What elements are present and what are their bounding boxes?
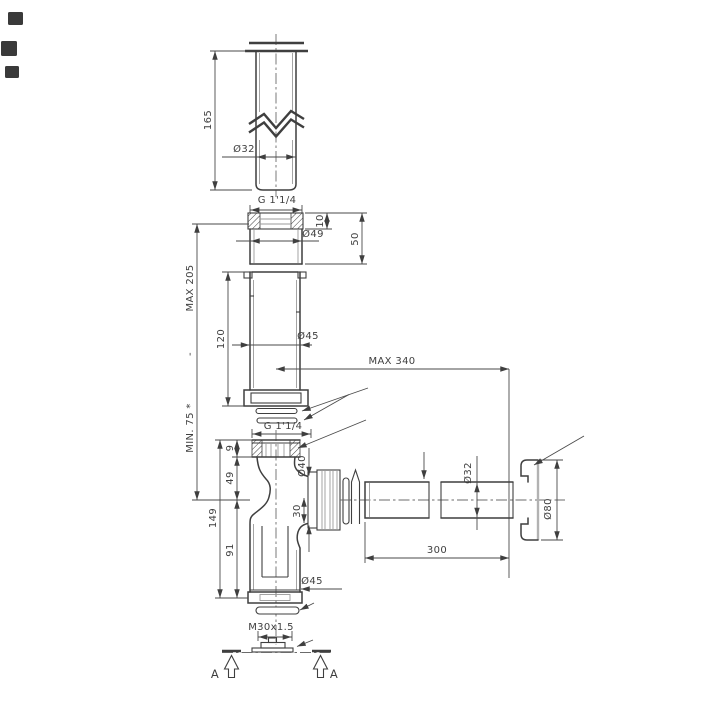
section-arrow-right: A: [314, 656, 339, 682]
dim-height-range: MAX 205 - MIN. 75 *: [185, 224, 250, 500]
dim-tail-length: 165: [203, 51, 252, 190]
dim-wallpipe-length: 300: [365, 522, 509, 563]
dim-10-label: 10: [315, 214, 326, 227]
drain-plug-bottom: [256, 603, 314, 614]
dim-o40-label: Ø40: [296, 455, 308, 477]
section-a-left-label: A: [211, 667, 219, 681]
plug-thread-label: M30x1.5: [248, 622, 294, 633]
dim-min75-label: MIN. 75 *: [185, 403, 196, 452]
dim-o45-bottom-label: Ø45: [301, 575, 323, 587]
dim-thread-top: G 1'1/4: [250, 195, 302, 213]
dim-30-label: 30: [292, 504, 303, 517]
wall-pipe: [340, 482, 565, 518]
dim-range-sep: -: [185, 352, 196, 356]
dim-91-label: 91: [225, 543, 236, 556]
dim-9-label: 9: [225, 445, 236, 452]
dim-reach-max: MAX 340: [276, 356, 509, 578]
tail-pipe: [245, 34, 308, 197]
corner-marks: [1, 12, 23, 78]
dim-o45-mid-label: Ø45: [297, 330, 319, 342]
dim-lip-height: 9: [225, 440, 252, 457]
reducer-bushing: [248, 213, 303, 264]
dim-wallpipe-diameter: Ø32: [462, 456, 477, 530]
dim-bush-diameter: Ø49: [236, 228, 324, 241]
thread-body-label: G 1'1/4: [264, 421, 303, 432]
dim-max205-label: MAX 205: [185, 264, 196, 311]
dim-ext-length: 120: [216, 272, 249, 406]
dim-outlet-offset: 30: [292, 498, 304, 523]
dim-120-label: 120: [216, 329, 227, 349]
wall-rosette: [521, 436, 584, 540]
dim-165-label: 165: [203, 110, 214, 130]
dim-50-label: 50: [350, 232, 361, 245]
dim-ext-diameter: Ø45: [232, 330, 319, 345]
dim-o80-label: Ø80: [542, 498, 554, 520]
dim-lower-height: 91: [225, 500, 237, 598]
siphon-technical-drawing: 165 Ø32 G 1'1/4 10 Ø49: [0, 0, 720, 720]
section-arrow-left: A: [211, 656, 239, 682]
dim-o49-label: Ø49: [302, 228, 324, 240]
dim-upper-height: 49: [225, 457, 237, 500]
dim-300-label: 300: [427, 545, 447, 556]
dim-o32-top-label: Ø32: [233, 143, 255, 155]
plug-profile-view: [252, 638, 313, 652]
dim-bush-lip: 10: [305, 213, 367, 229]
outlet-assembly: [308, 470, 360, 530]
dim-cup-diameter: Ø45: [301, 575, 342, 589]
dim-max340-label: MAX 340: [368, 356, 415, 367]
section-a-right-label: A: [330, 667, 338, 681]
dim-149-label: 149: [208, 508, 219, 528]
dim-49-label: 49: [225, 471, 236, 484]
dim-o32-right-label: Ø32: [462, 462, 474, 484]
dim-tail-diameter: Ø32: [222, 143, 296, 157]
dim-total-height: 149: [208, 440, 252, 598]
thread-top-label: G 1'1/4: [258, 195, 297, 206]
